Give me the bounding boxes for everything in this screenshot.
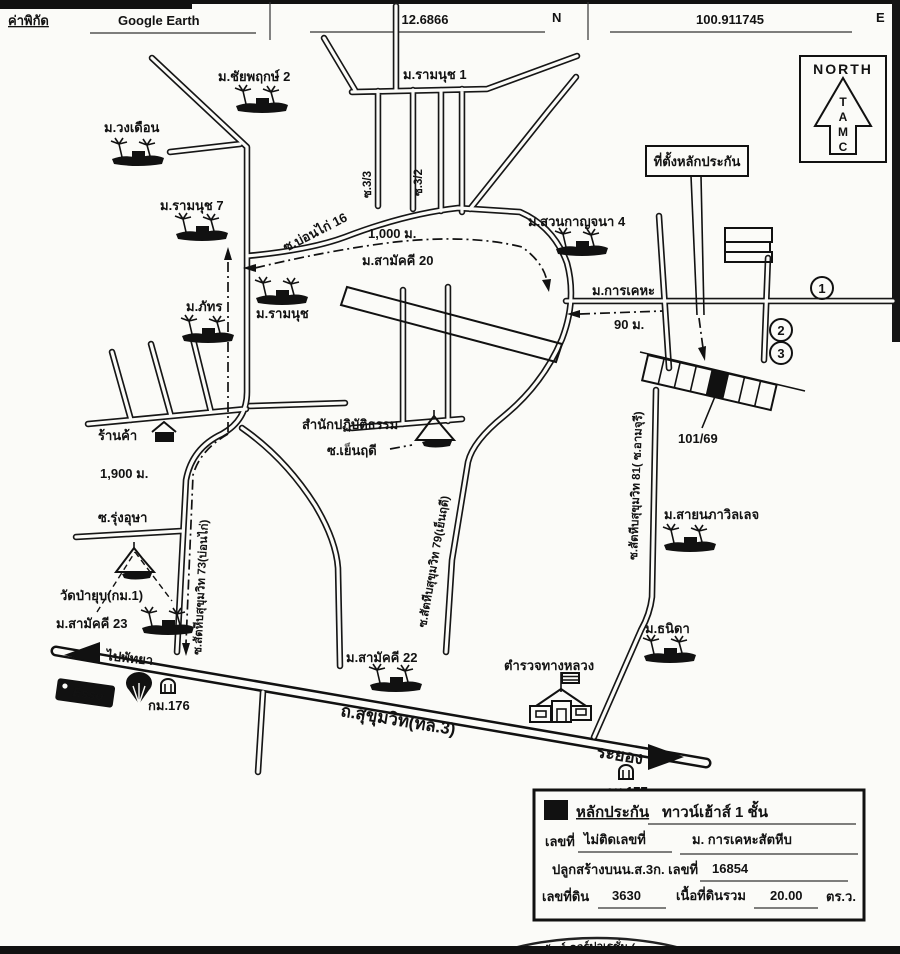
village-icon-wongduan <box>111 138 164 166</box>
label-watpayub: วัดป่ายุบ(กม.1) <box>60 588 143 604</box>
label-soi32: ซ.3/2 <box>413 169 425 196</box>
longitude-dir: E <box>876 10 885 25</box>
legend-swatch <box>544 800 568 820</box>
label-ramnuch1: ม.รามนุช 1 <box>403 67 467 83</box>
label-samakkee22: ม.สามัคคี 22 <box>346 650 417 665</box>
label-ramnuch: ม.รามนุช <box>256 306 309 322</box>
compass-letter-c: C <box>839 140 848 154</box>
info-area-unit: ตร.ว. <box>826 889 856 904</box>
label-karnkeha: ม.การเคหะ <box>592 283 655 298</box>
village-icon-chaiyaphruek2 <box>235 85 288 113</box>
label-samakkee23: ม.สามัคคี 23 <box>56 616 127 631</box>
info-no-value: ไม่ติดเลขที่ <box>582 830 646 847</box>
label-1000m: 1,000 ม. <box>368 226 416 241</box>
coord-source: Google Earth <box>118 13 200 28</box>
map-icons: Esso <box>55 85 716 779</box>
subject-plot <box>706 370 728 399</box>
circled-markers: 1 2 3 <box>770 277 833 364</box>
info-village: ม. การเคหะสัตหีบ <box>692 832 792 847</box>
label-km176: กม.176 <box>148 698 190 713</box>
north-label: NORTH <box>813 61 873 77</box>
townhouse-plots: 101/69 <box>640 352 805 446</box>
info-built-value: 16854 <box>712 861 749 876</box>
longitude-value: 100.911745 <box>696 12 764 27</box>
label-phat: ม.ภัทร <box>186 299 222 314</box>
coord-label: ค่าพิกัด <box>8 13 49 28</box>
compass-letter-a: A <box>839 110 848 124</box>
info-no-label: เลขที่ <box>545 832 575 849</box>
shop-icon <box>152 422 176 442</box>
label-1900m: 1,900 ม. <box>100 466 148 481</box>
label-soi33: ซ.3/3 <box>362 171 374 198</box>
label-suankanjana4: ม.สวนกาญจนา 4 <box>528 214 626 230</box>
info-title-value: ทาวน์เฮ้าส์ 1 ชั้น <box>662 800 769 821</box>
label-rungusa: ซ.รุ่งอุษา <box>98 510 147 526</box>
village-icon-sainapha <box>663 524 716 552</box>
km176-milestone-icon <box>161 679 175 693</box>
village-icon-samakkee23 <box>141 607 194 635</box>
village-icon-ramnuch <box>255 277 308 305</box>
info-area-value: 20.00 <box>770 888 803 903</box>
village-icon-suankanjana <box>555 228 608 256</box>
label-sainapha: ม.สายนภาวิลเลจ <box>664 507 759 522</box>
label-ramnuch7: ม.รามนุช 7 <box>160 198 224 214</box>
info-title-label: หลักประกัน <box>576 804 650 821</box>
bottom-scan-bar <box>0 946 900 954</box>
village-icon-phat <box>181 315 234 343</box>
info-area-label: เนื้อที่ดินรวม <box>676 885 746 903</box>
label-soi81: ซ.สัตหีบสุขุมวิท 81( ซ.อามจุรี) <box>627 411 646 560</box>
village-icon-ramnuch7 <box>175 213 228 241</box>
circle-1: 1 <box>818 281 825 296</box>
collateral-info-box: หลักประกัน ทาวน์เฮ้าส์ 1 ชั้น เลขที่ ไม่… <box>534 790 864 920</box>
label-thanida: ม.ธนิดา <box>645 621 690 636</box>
label-samnak: สำนักปฏิบัติธรรม <box>302 417 398 433</box>
info-land-label: เลขที่ดิน <box>542 887 589 904</box>
village-icon-thanida <box>643 635 696 663</box>
label-samakkee20: ม.สามัคคี 20 <box>362 253 433 268</box>
collateral-sign-label: ที่ตั้งหลักประกัน <box>654 151 741 169</box>
plot-number: 101/69 <box>678 431 718 446</box>
info-built-label: ปลูกสร้างบนน.ส.3ก. เลขที่ <box>552 860 698 878</box>
village-icon-samakkee22 <box>369 664 422 692</box>
latitude-dir: N <box>552 10 561 25</box>
land-block <box>341 287 562 362</box>
circle-2: 2 <box>777 323 784 338</box>
road-network <box>56 6 893 772</box>
circle-3: 3 <box>777 346 784 361</box>
km177-milestone-icon <box>619 765 633 779</box>
compass-letter-t: T <box>839 95 847 109</box>
latitude-value: 12.6866 <box>402 12 449 27</box>
info-land-value: 3630 <box>612 888 641 903</box>
label-90m: 90 ม. <box>614 317 644 332</box>
map-canvas: ค่าพิกัด Google Earth 12.6866 N 100.9117… <box>0 0 900 954</box>
compass-letter-m: M <box>838 125 848 139</box>
label-yenrudee: ซ.เย็นฤดี <box>327 441 377 458</box>
north-compass: NORTH T A M C <box>800 56 886 162</box>
esso-station-sign: Esso <box>55 678 115 708</box>
to-rayong-arrow <box>648 744 684 770</box>
label-wongduan: ม.วงเดือน <box>104 120 160 135</box>
label-chaiyaphruek2: ม.ชัยพฤกษ์ 2 <box>218 69 290 84</box>
label-police: ตำรวจทางหลวง <box>504 658 594 673</box>
label-soi73: ซ.สัตหีบสุขุมวิท 73(บ่อนไก่) <box>190 519 212 655</box>
label-ranka: ร้านค้า <box>98 428 137 443</box>
scanned-location-map: { "header": { "coord_label": "ค่าพิกัด",… <box>0 0 900 954</box>
police-station-icon <box>530 672 591 722</box>
